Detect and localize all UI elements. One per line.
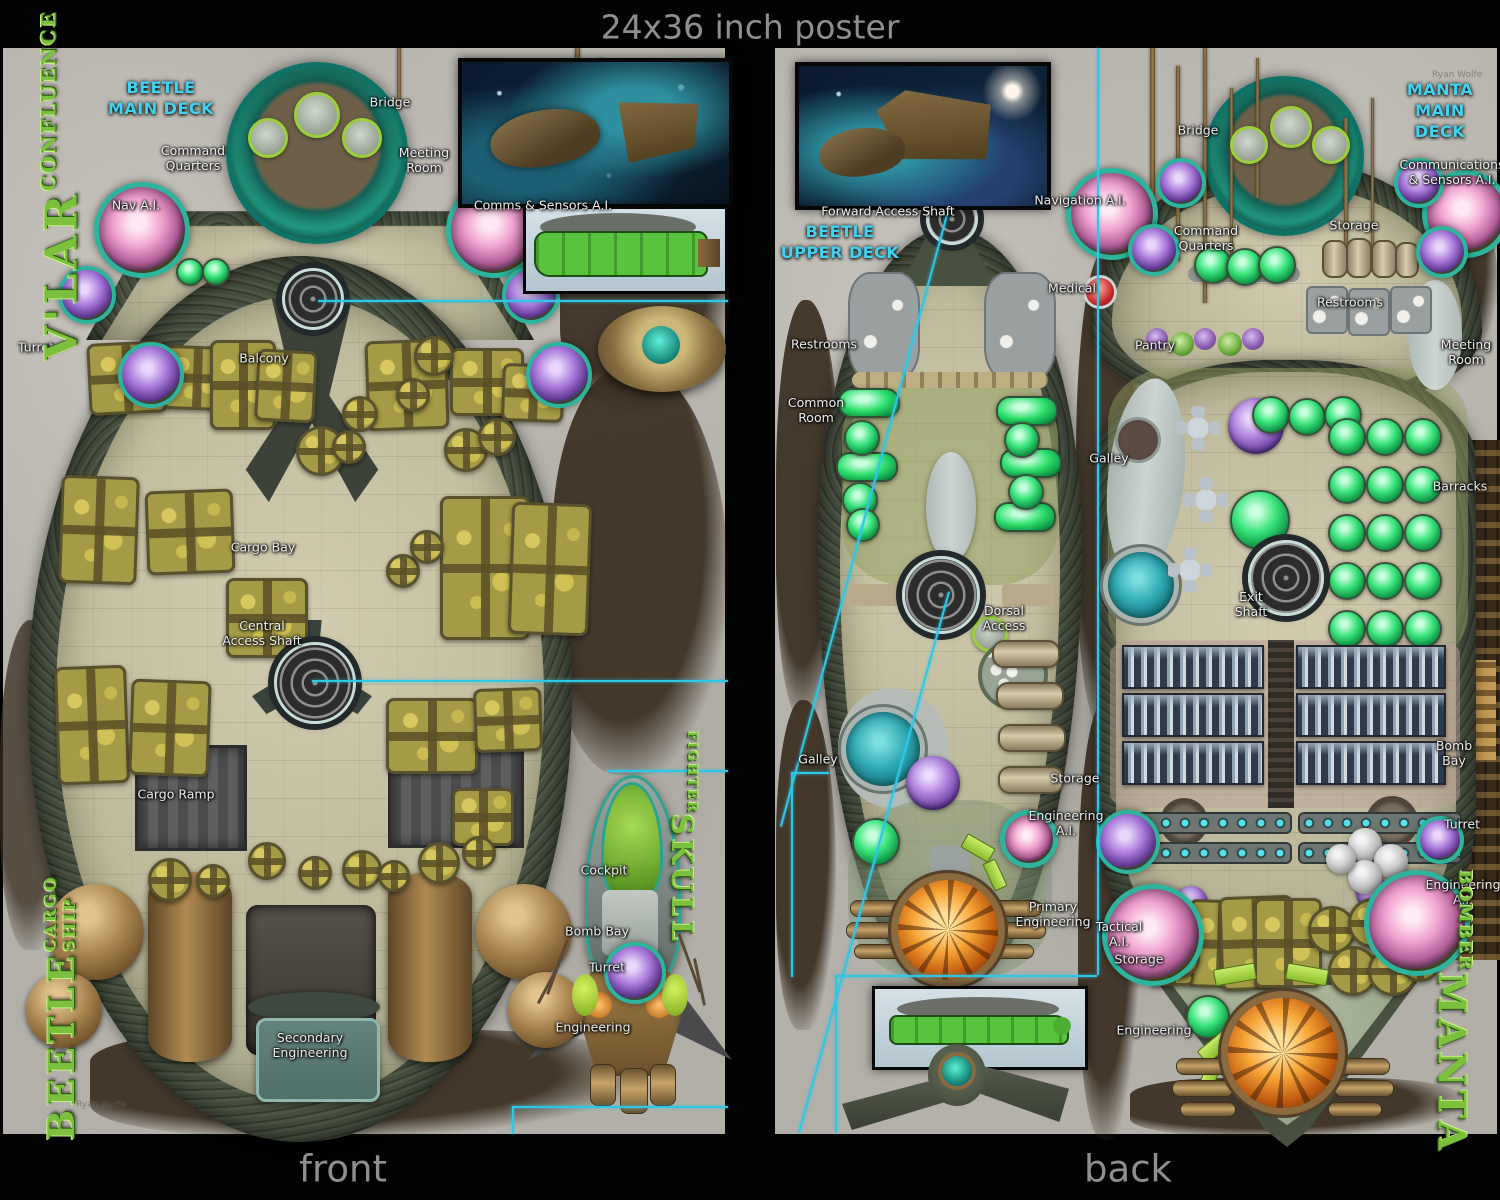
- green-pod: [844, 420, 880, 456]
- secondary-engineering-label: Secondary Engineering: [273, 1030, 348, 1061]
- storage-tank: [998, 724, 1066, 752]
- green-pod: [1328, 466, 1366, 504]
- skull-fighter-title: FIGHTERSKULL: [665, 731, 699, 945]
- restroom-cell: [1390, 286, 1432, 334]
- green-pod: [1252, 396, 1290, 434]
- green-pod: [1366, 562, 1404, 600]
- green-pod: [1288, 398, 1326, 436]
- bridge-manta-label: Bridge: [1178, 122, 1219, 137]
- table-with-chairs: [1176, 406, 1220, 450]
- bridge-console: [1312, 126, 1350, 164]
- green-pod: [1404, 562, 1442, 600]
- green-pod: [1004, 422, 1040, 458]
- green-pod: [202, 258, 230, 286]
- poster-preview-canvas: 24x36 inch poster: [0, 0, 1500, 1200]
- sleep-pod: [838, 388, 900, 418]
- barracks-label: Barracks: [1433, 478, 1488, 493]
- space-scene-inset: [458, 58, 733, 208]
- manta-pool: [1108, 552, 1174, 618]
- cargo-pod: [462, 836, 496, 870]
- callout-line: [791, 772, 829, 774]
- manta-main-deck-title: MANTA MAIN DECK: [1407, 80, 1473, 142]
- restrooms-beetle-label: Restrooms: [791, 336, 857, 351]
- pantry-jar: [1194, 328, 1216, 350]
- green-pod: [1404, 418, 1442, 456]
- front-caption: front: [299, 1148, 387, 1191]
- torpedo: [1176, 1058, 1236, 1075]
- green-pod: [1008, 474, 1044, 510]
- torpedo: [1334, 1080, 1394, 1097]
- cargo-pod: [248, 842, 286, 880]
- engine-cylinder: [148, 872, 232, 1062]
- nav-ai-label: Nav A.I.: [112, 197, 160, 212]
- engineering-manta-label: Engineering: [1117, 1022, 1192, 1037]
- restroom-pod: [984, 272, 1056, 380]
- primary-engineering-label: Primary Engineering: [1016, 899, 1091, 930]
- beetle-side-view-inset: [523, 206, 728, 294]
- common-room-lockers: [852, 372, 1048, 388]
- missile-rack: [1296, 741, 1446, 785]
- engineering-ai-beetle-label: Engineering A.I.: [1029, 808, 1104, 839]
- beetle-top-dome: [642, 326, 680, 364]
- medical-label: Medical: [1048, 280, 1096, 295]
- missile-rack: [1296, 645, 1446, 689]
- cargo-bay-label: Cargo Bay: [231, 539, 296, 554]
- cargo-crate: [508, 502, 593, 637]
- skull-wing-pod: [662, 974, 688, 1016]
- galley-manta-label: Galley: [1089, 450, 1128, 465]
- beetle-upper-deck-title: BEETLE UPPER DECK: [781, 222, 900, 264]
- artist-watermark: Ryan Wolfe: [76, 1100, 126, 1110]
- turret-sphere: [1416, 226, 1468, 278]
- bomb-bay-divider: [1268, 640, 1294, 808]
- restroom-pod: [848, 272, 920, 380]
- green-pod: [1328, 610, 1366, 648]
- cargo-crate: [473, 687, 543, 753]
- green-pod: [1328, 562, 1366, 600]
- balcony-access-shaft: [282, 268, 344, 330]
- cargo-pod: [196, 864, 230, 898]
- green-pod: [1328, 514, 1366, 552]
- torpedo: [650, 1064, 676, 1106]
- cargo-pod: [418, 842, 460, 884]
- callout-line: [318, 300, 728, 302]
- poster-size-title: 24x36 inch poster: [601, 8, 900, 47]
- central-access-shaft-label: Central Access Shaft: [222, 618, 301, 649]
- bridge-console: [1230, 126, 1268, 164]
- common-room-label: Common Room: [788, 395, 844, 426]
- cargo-ramp-label: Cargo Ramp: [137, 786, 214, 801]
- cargo-crate: [54, 665, 130, 785]
- navigation-ai-label: Navigation A.I.: [1034, 192, 1125, 207]
- beetle-side-hull: [534, 231, 708, 277]
- forward-access-shaft-label: Forward Access Shaft: [821, 203, 955, 218]
- sleep-pod: [836, 452, 898, 482]
- storage-silo: [1371, 240, 1397, 278]
- green-pod: [1366, 610, 1404, 648]
- manta-render-dome: [942, 1056, 972, 1086]
- table-with-chairs: [1168, 548, 1212, 592]
- tactical-ai-label: Tactical A.I.: [1096, 919, 1142, 950]
- beetle-ship-render: [485, 99, 604, 177]
- turret-sphere: [1128, 224, 1180, 276]
- missile-rack: [1296, 693, 1446, 737]
- skull-wing-pod: [572, 974, 598, 1016]
- callout-line: [512, 1106, 728, 1108]
- cargo-pod: [410, 530, 444, 564]
- storage-tank: [992, 640, 1060, 668]
- pantry-jar: [1218, 332, 1242, 356]
- green-pod: [1366, 514, 1404, 552]
- cargo-pod: [332, 430, 366, 464]
- green-pod: [1366, 466, 1404, 504]
- green-pod: [1404, 610, 1442, 648]
- missile-rack: [1122, 645, 1264, 689]
- tank-sphere: [1326, 844, 1356, 874]
- artist-watermark: Ryan Wolfe: [1432, 70, 1482, 80]
- manta-ship-render: [863, 63, 1008, 190]
- cargo-pod: [414, 336, 454, 376]
- manta-side-hull: [889, 1015, 1069, 1045]
- balcony-label: Balcony: [239, 350, 289, 365]
- command-quarters-manta-label: Command Quarters: [1174, 223, 1238, 254]
- turret-sphere: [1156, 158, 1206, 208]
- manta-side-pod: [1053, 1017, 1071, 1035]
- bridge-console: [1270, 106, 1312, 148]
- table-with-chairs: [1184, 478, 1228, 522]
- galley-beetle-label: Galley: [798, 751, 837, 766]
- engine-core: [898, 880, 998, 980]
- torpedo: [1328, 1102, 1382, 1117]
- meeting-room-label: Meeting Room: [399, 145, 449, 176]
- cargo-pod: [342, 850, 382, 890]
- exit-shaft-label: Exit Shaft: [1235, 589, 1268, 620]
- missile-rack: [1122, 741, 1264, 785]
- storage-tank: [996, 682, 1064, 710]
- cargo-pod: [396, 378, 430, 412]
- comms-sensors-ai-label: Comms & Sensors A.I.: [474, 197, 612, 212]
- turret-skull-label: Turret: [589, 959, 625, 974]
- green-pod: [1258, 246, 1296, 284]
- torpedo: [1330, 1058, 1390, 1075]
- turret-sphere: [1096, 810, 1160, 874]
- back-caption: back: [1084, 1148, 1172, 1191]
- central-access-shaft: [274, 642, 356, 724]
- beetle-top-view-render: [598, 306, 726, 392]
- storage-silo: [1346, 238, 1372, 278]
- cockpit-label: Cockpit: [581, 862, 628, 877]
- torpedo: [1180, 1102, 1236, 1117]
- manta-ship-render: [592, 77, 707, 181]
- engine-cylinder: [388, 872, 472, 1062]
- common-room-table: [926, 452, 976, 562]
- meeting-room-manta-label: Meeting Room: [1441, 337, 1491, 368]
- bridge-dome: [226, 62, 408, 244]
- callout-line: [835, 975, 1097, 977]
- callout-line: [312, 680, 728, 682]
- cargo-pod: [478, 418, 516, 456]
- vlar-confluence-title: V'LARCONFLUENCE: [37, 10, 88, 360]
- green-pod: [1328, 418, 1366, 456]
- cargo-pod: [342, 396, 378, 432]
- deck-lintel: [846, 584, 902, 606]
- cargo-crate: [58, 475, 140, 586]
- callout-line: [791, 772, 793, 977]
- engineering-skull-label: Engineering: [556, 1019, 631, 1034]
- dorsal-access-label: Dorsal Access: [983, 603, 1026, 634]
- sleep-pod: [996, 396, 1058, 426]
- manta-engine-core: [1228, 998, 1338, 1108]
- green-pod: [176, 258, 204, 286]
- cargo-crate: [145, 488, 236, 575]
- cargo-pod: [298, 856, 332, 890]
- command-quarters-label: Command Quarters: [161, 143, 225, 174]
- storage-manta-label: Storage: [1115, 951, 1164, 966]
- cargo-pod: [148, 858, 192, 902]
- bridge-label: Bridge: [370, 94, 411, 109]
- cargo-crate: [128, 679, 211, 778]
- manta-bomber-title: BOMBERMANTA: [1430, 870, 1475, 1154]
- callout-line: [512, 1106, 514, 1134]
- beetle-cargo-ship-title: BEETLECARGO SHIP: [41, 876, 83, 1141]
- missile-rack: [1122, 693, 1264, 737]
- space-scene-inset: [795, 62, 1051, 210]
- cargo-crate: [386, 698, 478, 774]
- bridge-console: [294, 92, 340, 138]
- beetle-side-engine: [698, 239, 720, 267]
- turret-manta-label: Turret: [1444, 816, 1480, 831]
- purple-sphere: [906, 756, 960, 810]
- storage-manta-top-label: Storage: [1330, 217, 1379, 232]
- turret-sphere: [526, 342, 592, 408]
- beetle-main-deck-title: BEETLE MAIN DECK: [108, 78, 214, 120]
- storage-beetle-label: Storage: [1051, 770, 1100, 785]
- bridge-console: [342, 118, 382, 158]
- bomb-bay-manta-label: Bomb Bay: [1436, 738, 1472, 769]
- torpedo: [1172, 1080, 1234, 1097]
- torpedo: [590, 1064, 616, 1106]
- restroom-cell: [1306, 286, 1348, 334]
- callout-line: [835, 975, 837, 1133]
- restrooms-manta-label: Restrooms: [1317, 294, 1383, 309]
- ammo-conveyor: [1136, 812, 1292, 834]
- cargo-pod: [378, 860, 410, 892]
- communications-sensors-ai-label: Communications & Sensors A.I.: [1399, 157, 1500, 188]
- bridge-console: [248, 118, 288, 158]
- turret-sphere: [118, 342, 184, 408]
- bomb-bay-skull-label: Bomb Bay: [565, 923, 629, 938]
- pantry-jar: [1242, 328, 1264, 350]
- pantry-label: Pantry: [1135, 337, 1175, 352]
- storage-silo: [1322, 240, 1348, 278]
- green-pod: [1366, 418, 1404, 456]
- green-pod: [1404, 514, 1442, 552]
